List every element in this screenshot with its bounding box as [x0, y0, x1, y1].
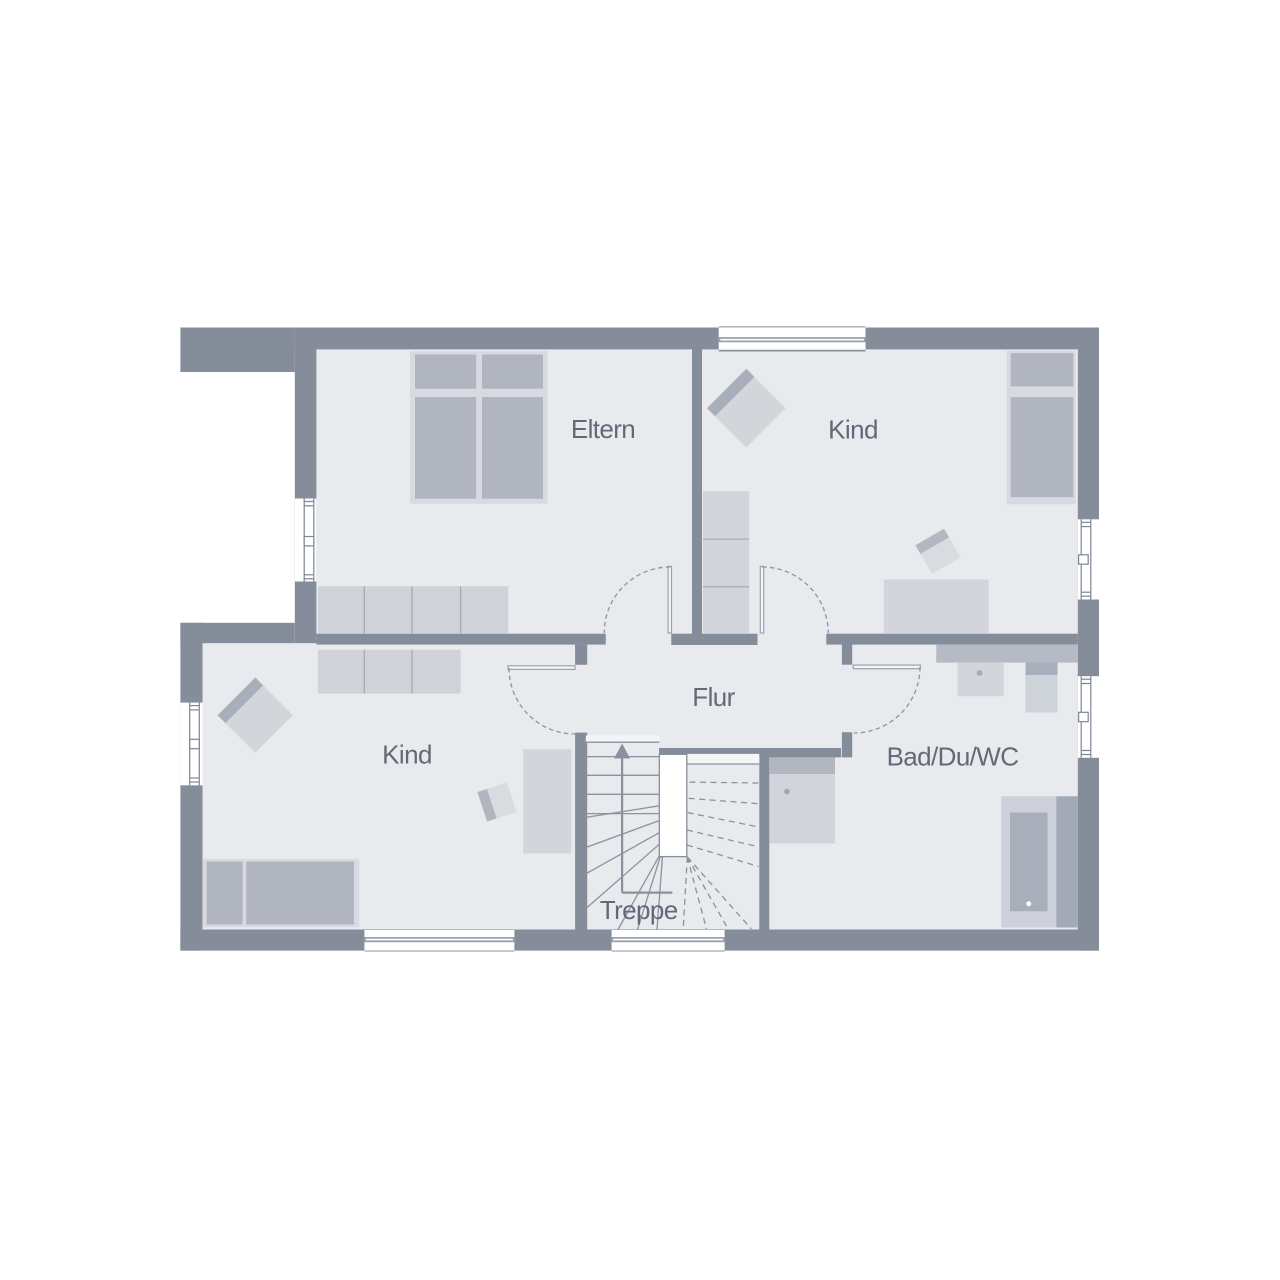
- svg-text:Bad/Du/WC: Bad/Du/WC: [887, 742, 1019, 772]
- svg-text:Flur: Flur: [692, 682, 735, 712]
- svg-text:Kind: Kind: [382, 740, 432, 770]
- svg-text:Kind: Kind: [828, 415, 878, 445]
- svg-text:Eltern: Eltern: [571, 414, 635, 444]
- svg-text:Treppe: Treppe: [600, 895, 678, 925]
